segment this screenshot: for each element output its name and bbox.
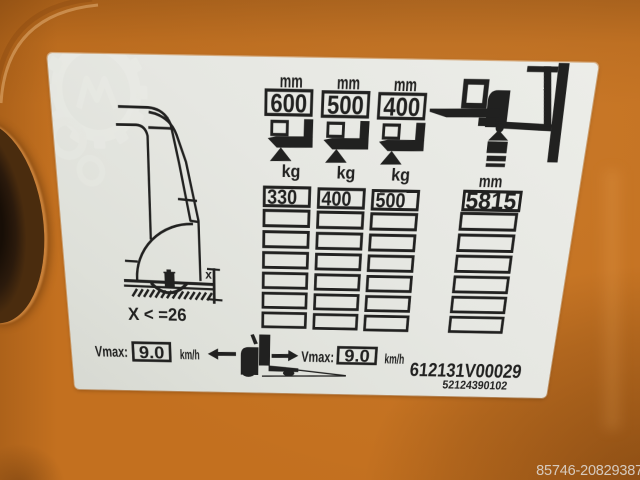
svg-text:9.0: 9.0	[344, 346, 371, 366]
svg-text:kg: kg	[391, 164, 411, 184]
svg-text:kg: kg	[336, 162, 356, 182]
svg-text:52124390102: 52124390102	[442, 379, 508, 393]
svg-text:km/h: km/h	[384, 352, 405, 367]
svg-text:330: 330	[267, 185, 297, 209]
svg-text:600: 600	[270, 89, 307, 119]
svg-text:500: 500	[327, 91, 365, 120]
svg-text:km/h: km/h	[180, 348, 200, 363]
svg-text:X < =26: X < =26	[128, 305, 187, 325]
svg-text:5815: 5815	[464, 188, 518, 214]
svg-text:500: 500	[375, 188, 407, 212]
svg-text:Vmax:: Vmax:	[94, 343, 128, 360]
svg-text:9.0: 9.0	[138, 343, 164, 363]
svg-text:kg: kg	[281, 161, 300, 181]
svg-text:400: 400	[383, 93, 422, 122]
svg-text:400: 400	[321, 186, 352, 210]
svg-text:Vmax:: Vmax:	[301, 348, 334, 365]
svg-text:x: x	[205, 268, 212, 282]
